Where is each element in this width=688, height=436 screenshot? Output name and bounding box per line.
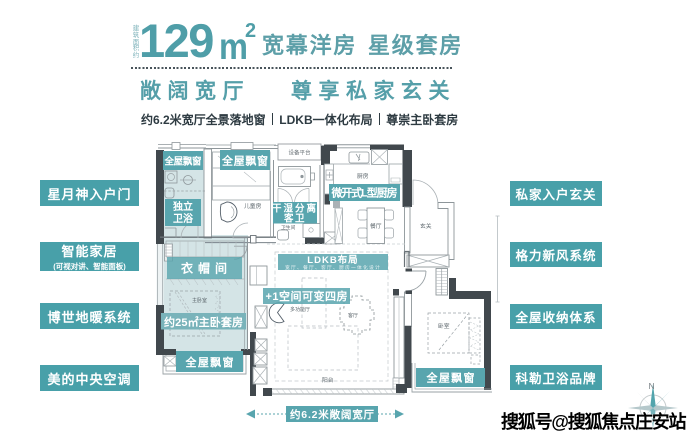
svg-text:全屋飘窗: 全屋飘窗 — [221, 154, 268, 168]
svg-text:卧室: 卧室 — [438, 322, 450, 330]
svg-text:独立: 独立 — [173, 200, 193, 213]
svg-text:玄关: 玄关 — [420, 222, 432, 230]
svg-text:餐厅: 餐厅 — [370, 222, 382, 230]
svg-text:微开式L型厨房: 微开式L型厨房 — [331, 186, 398, 200]
svg-text:LDKB布局: LDKB布局 — [307, 254, 358, 266]
svg-text:衣帽间: 衣帽间 — [181, 261, 232, 276]
svg-text:儿童房: 儿童房 — [244, 202, 262, 210]
svg-text:厨房: 厨房 — [357, 172, 369, 180]
svg-text:约6.2米敞阔宽厅: 约6.2米敞阔宽厅 — [290, 408, 375, 421]
svg-text:客卫: 客卫 — [283, 213, 306, 225]
svg-text:阳台: 阳台 — [322, 376, 334, 384]
svg-text:+1空间可变四房: +1空间可变四房 — [266, 289, 348, 303]
svg-text:多功能厅: 多功能厅 — [290, 306, 310, 313]
svg-text:卫浴: 卫浴 — [173, 212, 194, 225]
svg-text:N: N — [649, 381, 655, 391]
svg-text:全屋飘窗: 全屋飘窗 — [164, 156, 202, 168]
svg-text:主卧室: 主卧室 — [192, 297, 207, 304]
svg-text:宽厅、餐厅、客厅、厨房一体化设计: 宽厅、餐厅、客厅、厨房一体化设计 — [285, 264, 381, 271]
svg-text:约25㎡主卧套房: 约25㎡主卧套房 — [164, 315, 243, 329]
svg-text:设备平台: 设备平台 — [288, 149, 311, 157]
svg-text:客厅: 客厅 — [348, 312, 358, 319]
